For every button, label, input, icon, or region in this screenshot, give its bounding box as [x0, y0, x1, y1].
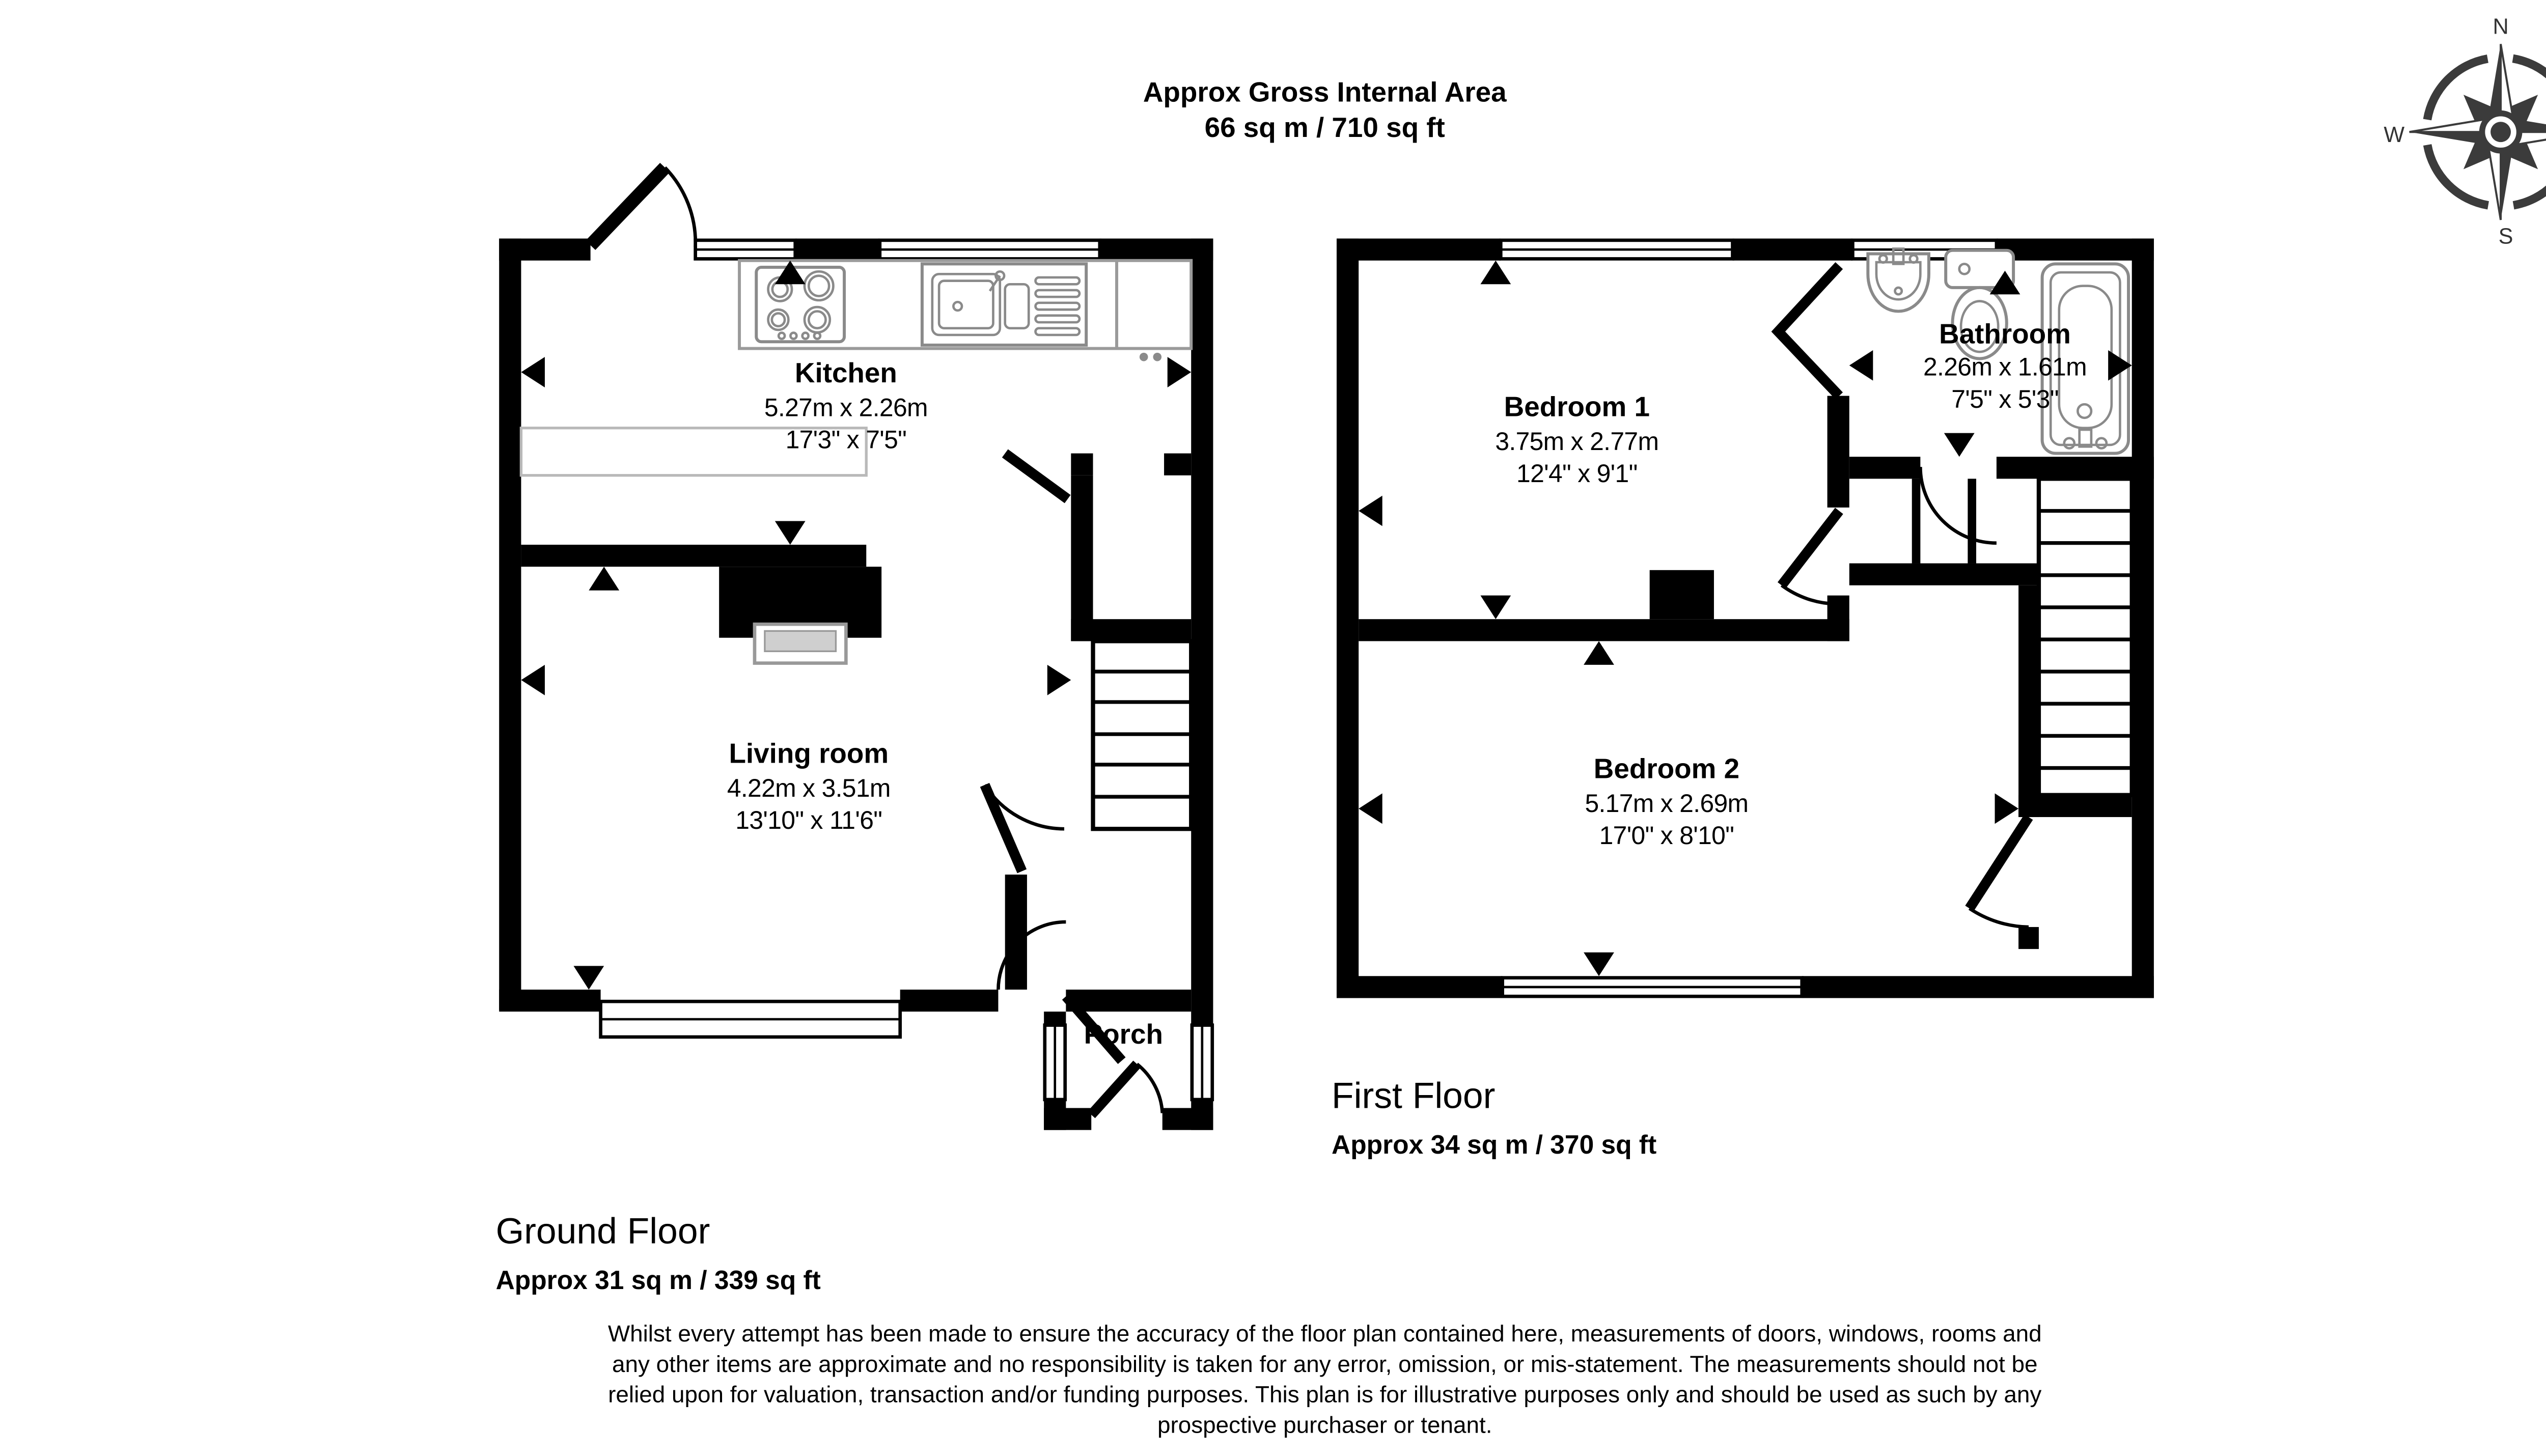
- disclaimer-line1: Whilst every attempt has been made to en…: [608, 1320, 2042, 1347]
- floor-plan-ground: Kitchen 5.27m x 2.26m 17'3" x 7'5" Livin…: [499, 167, 1213, 1130]
- door-arc: [1970, 908, 2029, 927]
- measure-arrow-right: [1168, 357, 1192, 387]
- room-label-bedroom1: Bedroom 1: [1504, 390, 1650, 422]
- ground-floor-caption: Ground Floor Approx 31 sq m / 339 sq ft: [496, 1211, 821, 1295]
- room-dim-metric: 5.17m x 2.69m: [1585, 789, 1748, 818]
- measure-arrow-left: [1849, 350, 1873, 381]
- wall: [1359, 619, 1849, 641]
- bay-window: [601, 1001, 900, 1037]
- floor-plan-first: Bedroom 1 3.75m x 2.77m 12'4" x 9'1" Bat…: [1337, 239, 2154, 998]
- floor-label: First Floor: [1332, 1075, 1495, 1116]
- wall: [1997, 457, 2154, 479]
- cupboard-divider: [1968, 479, 1976, 563]
- wall: [1071, 619, 1191, 641]
- wall: [1997, 239, 2154, 261]
- room-dim-metric: 2.26m x 1.61m: [1923, 353, 2087, 381]
- room-dim-metric: 3.75m x 2.77m: [1495, 427, 1658, 456]
- measure-arrow-left: [521, 665, 545, 695]
- disclaimer-line4: prospective purchaser or tenant.: [1157, 1411, 1492, 1438]
- wall: [1337, 239, 1501, 261]
- measure-arrow-left: [521, 357, 545, 387]
- room-dim-metric: 4.22m x 3.51m: [727, 774, 891, 802]
- wall: [521, 545, 866, 567]
- compass-label-n: N: [2493, 15, 2508, 39]
- floor-area: Approx 34 sq m / 370 sq ft: [1332, 1130, 1656, 1159]
- wall: [1337, 976, 1503, 998]
- room-dim-imperial: 13'10" x 11'6": [735, 806, 882, 834]
- window: [1045, 1025, 1065, 1100]
- wall: [1849, 457, 1921, 479]
- door-arc: [665, 167, 696, 247]
- measure-arrow-left: [1359, 793, 1382, 824]
- first-floor-caption: First Floor Approx 34 sq m / 370 sq ft: [1332, 1075, 1656, 1159]
- measure-arrow-down: [1944, 433, 1975, 457]
- measure-arrow-down: [1584, 953, 1614, 976]
- door-leaf: [591, 167, 665, 245]
- disclaimer: Whilst every attempt has been made to en…: [608, 1320, 2042, 1438]
- door-arc: [1137, 1064, 1163, 1113]
- wall: [1802, 976, 2154, 998]
- measure-arrow-down: [1480, 596, 1511, 620]
- wall: [1828, 396, 1849, 508]
- window: [880, 240, 1100, 259]
- door-leaf: [985, 785, 1022, 871]
- compass-label-s: S: [2499, 225, 2513, 249]
- wall: [2018, 795, 2132, 817]
- door-leaf: [1091, 1064, 1137, 1115]
- disclaimer-line3: relied upon for valuation, transaction a…: [608, 1381, 2041, 1408]
- wall: [1071, 454, 1093, 475]
- disclaimer-line2: any other items are approximate and no r…: [612, 1351, 2038, 1377]
- chimney-breast: [1650, 570, 1714, 619]
- room-dim-imperial: 12'4" x 9'1": [1516, 459, 1638, 488]
- wall: [795, 239, 880, 261]
- wall: [2018, 927, 2039, 949]
- floor-label: Ground Floor: [496, 1211, 710, 1251]
- fireplace-icon: [755, 624, 846, 663]
- wall: [1071, 475, 1093, 641]
- title-line2: 66 sq m / 710 sq ft: [1205, 111, 1445, 143]
- wall: [1164, 454, 1191, 475]
- door-arc: [1920, 467, 1997, 543]
- basin-icon: [1868, 248, 1929, 311]
- room-dim-metric: 5.27m x 2.26m: [764, 393, 928, 422]
- room-dim-imperial: 7'5" x 5'3": [1951, 385, 2059, 413]
- cupboard-divider: [1912, 479, 1921, 563]
- measure-arrow-down: [775, 521, 806, 545]
- wall: [1163, 1108, 1213, 1130]
- measure-arrow-left: [1359, 496, 1382, 526]
- wall: [1191, 239, 1213, 1130]
- wall: [2132, 239, 2154, 998]
- window: [1503, 978, 1802, 997]
- compass-label-w: W: [2384, 123, 2404, 147]
- window: [1501, 240, 1732, 259]
- wall: [1733, 239, 1853, 261]
- sink-icon: [922, 264, 1086, 345]
- room-dim-imperial: 17'0" x 8'10": [1599, 821, 1734, 850]
- measure-arrow-right: [1995, 793, 2019, 824]
- page-title: Approx Gross Internal Area 66 sq m / 710…: [1143, 76, 1507, 143]
- wall: [1044, 1108, 1091, 1130]
- measure-arrow-up: [589, 567, 619, 591]
- wall: [1005, 875, 1027, 990]
- measure-arrow-up: [1584, 641, 1614, 665]
- measure-arrow-right: [1047, 665, 1071, 695]
- wall: [499, 990, 600, 1012]
- window: [696, 240, 795, 259]
- staircase: [1093, 641, 1192, 829]
- wall: [1337, 239, 1359, 998]
- title-line1: Approx Gross Internal Area: [1143, 76, 1507, 107]
- bifold-door-leaves: [1778, 266, 1839, 396]
- wall: [1849, 564, 2039, 585]
- floor-area: Approx 31 sq m / 339 sq ft: [496, 1265, 821, 1295]
- window: [1192, 1025, 1212, 1100]
- wall: [900, 990, 999, 1012]
- measure-arrow-down: [573, 966, 604, 990]
- floorplan-page: Approx Gross Internal Area 66 sq m / 710…: [0, 0, 2546, 1456]
- wall: [499, 239, 521, 1010]
- room-label-porch: Porch: [1084, 1018, 1163, 1050]
- measure-arrow-up: [1480, 261, 1511, 285]
- door-leaf: [1005, 454, 1068, 499]
- room-dim-imperial: 17'3" x 7'5": [786, 426, 907, 454]
- door-leaf: [1782, 511, 1839, 585]
- room-label-bathroom: Bathroom: [1939, 318, 2071, 350]
- door-leaf: [1970, 817, 2029, 908]
- staircase: [2039, 479, 2132, 795]
- room-label-kitchen: Kitchen: [795, 357, 897, 388]
- room-label-bedroom2: Bedroom 2: [1594, 753, 1739, 785]
- wall: [1066, 990, 1191, 1012]
- wall: [2018, 585, 2039, 817]
- compass-hub-dot: [2490, 122, 2511, 142]
- compass-rose-icon: N S E W: [2384, 15, 2546, 249]
- room-label-living-room: Living room: [729, 738, 889, 769]
